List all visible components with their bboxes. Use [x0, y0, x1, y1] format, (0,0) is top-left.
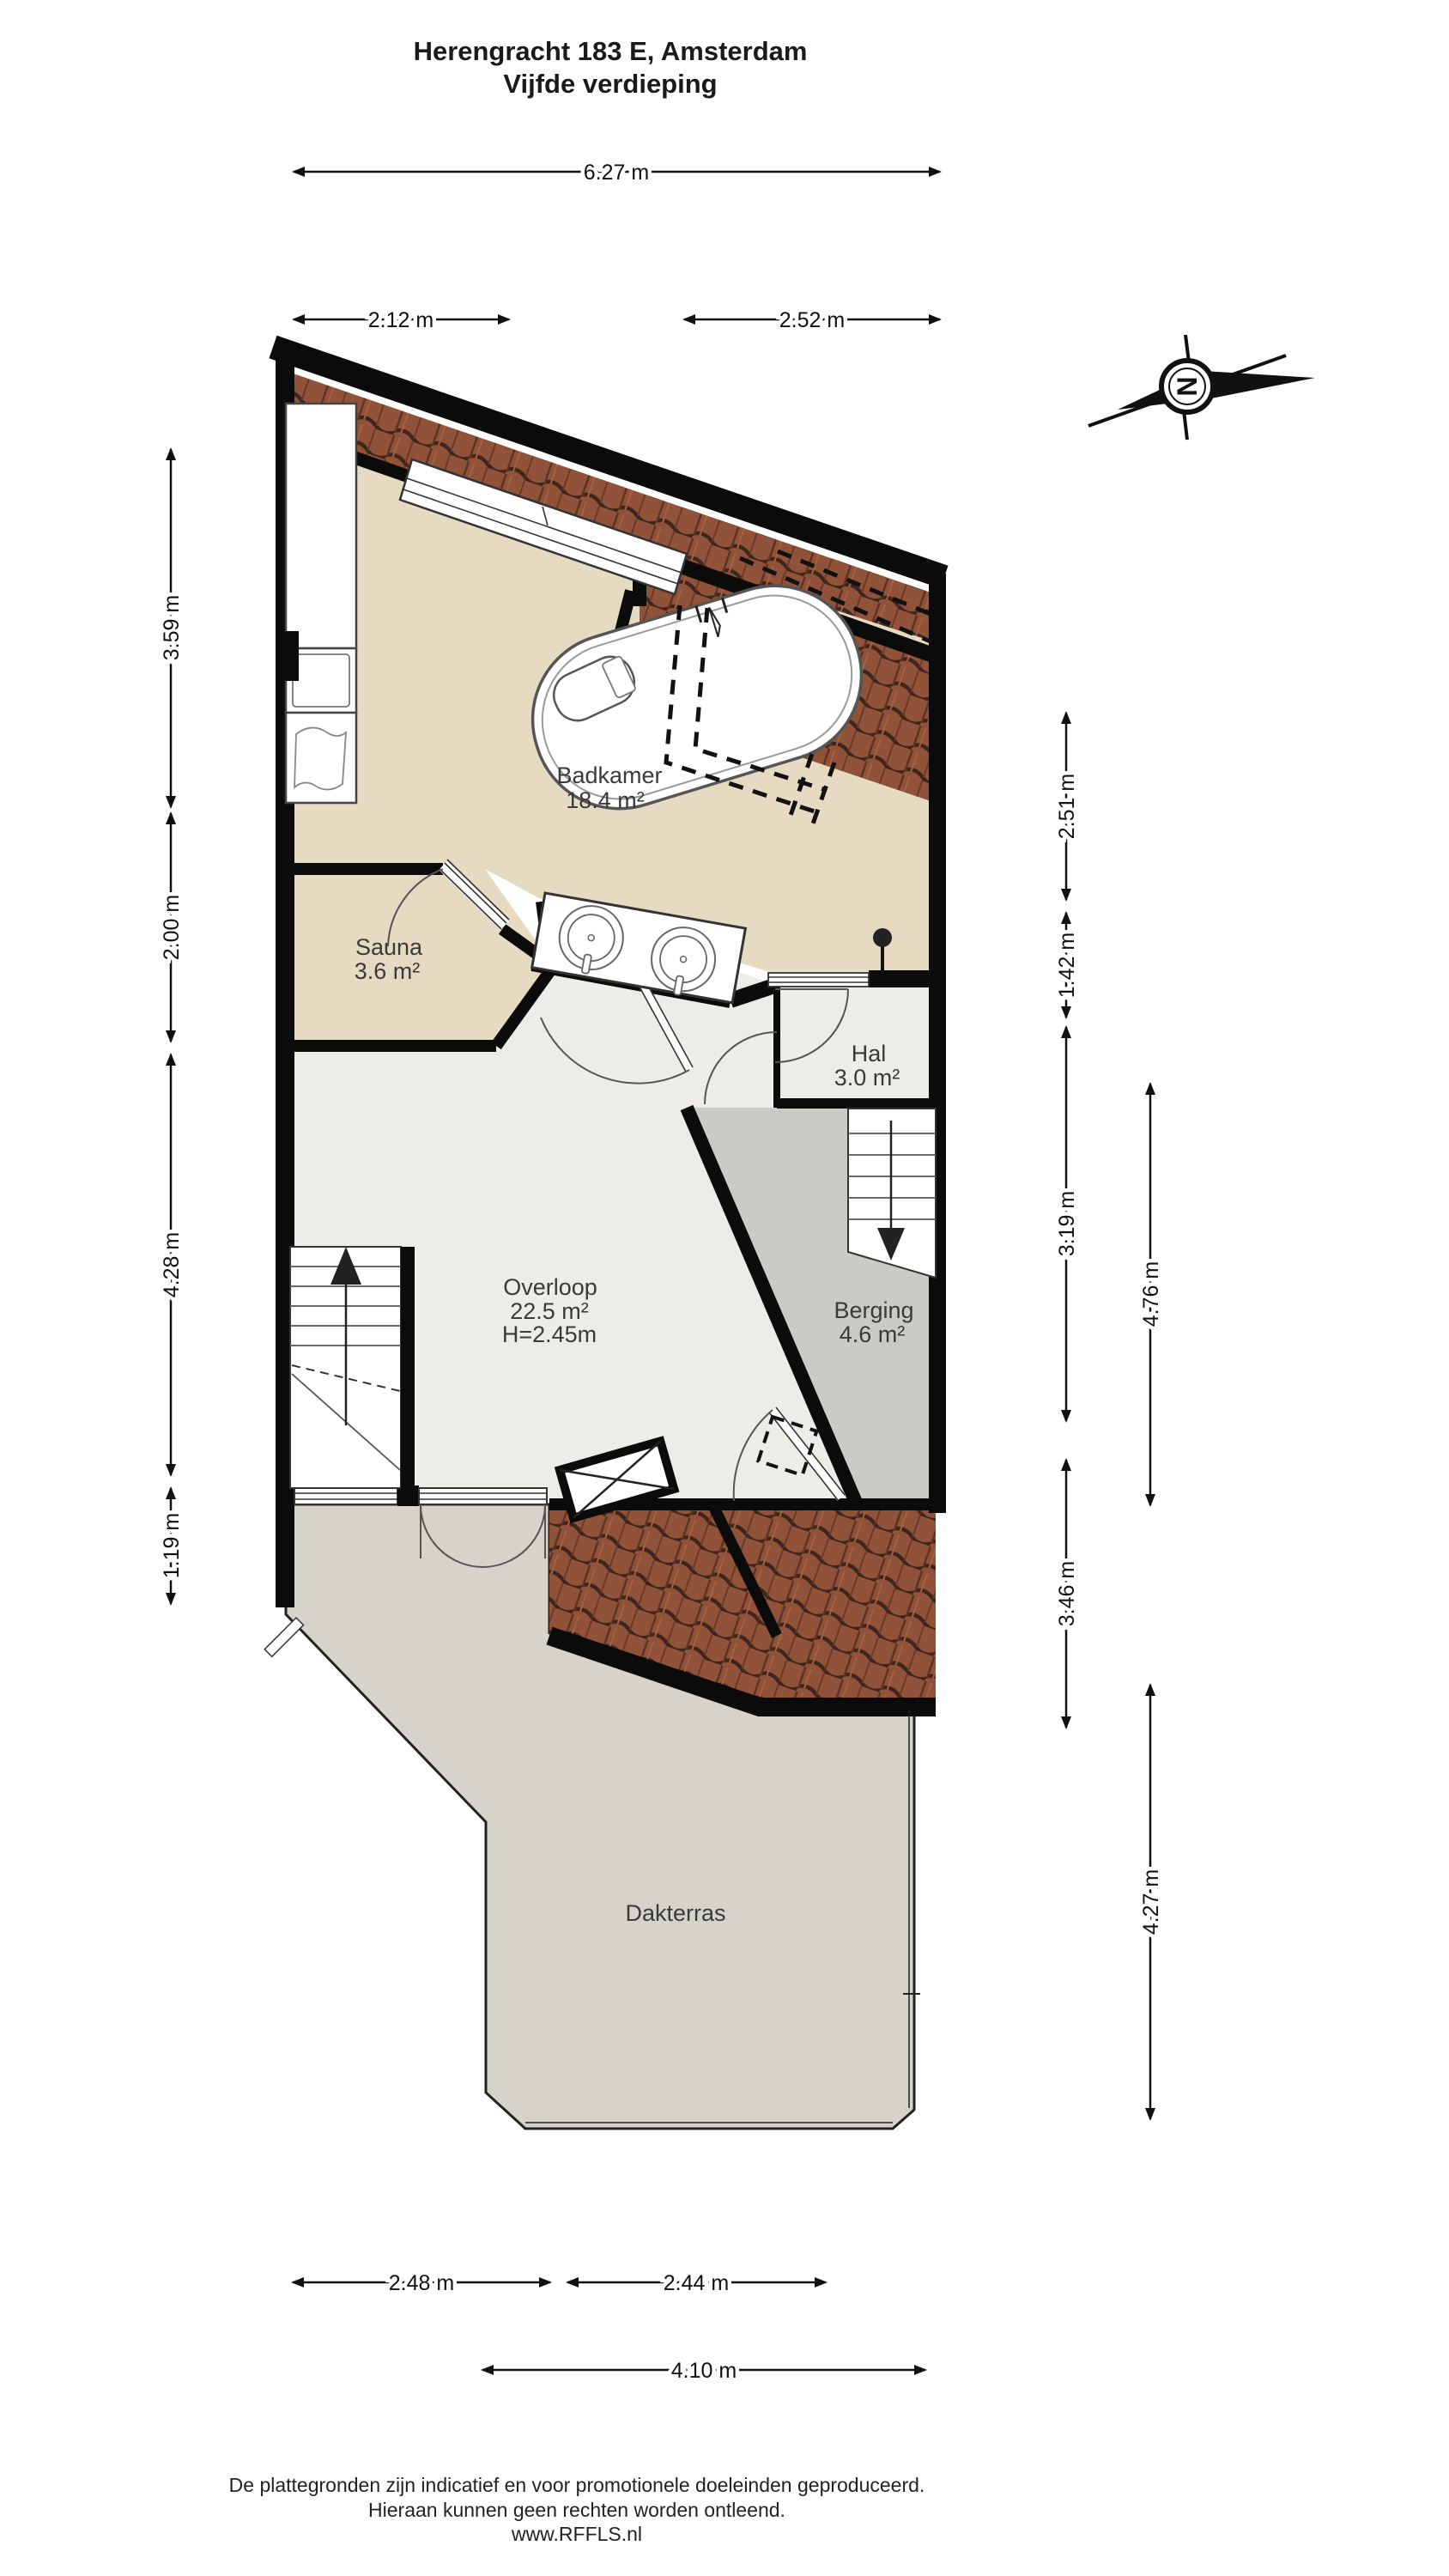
compass-letter: N [1171, 376, 1202, 396]
berging-area: 4.6 m² [840, 1321, 906, 1347]
laundry-flap [294, 727, 346, 789]
dim-left-2: 2.00 m [160, 895, 184, 960]
compass-icon: N [1088, 335, 1315, 440]
footer-link[interactable]: www.RFFLS.nl [511, 2523, 642, 2545]
overloop-label: Overloop [503, 1274, 597, 1300]
dim-left-4: 1.19 m [160, 1513, 184, 1578]
badkamer-label: Badkamer [556, 762, 662, 788]
floorplan-canvas: Herengracht 183 E, Amsterdam Vijfde verd… [0, 0, 1449, 2576]
dim-right-outer-2: 4.27 m [1139, 1869, 1163, 1935]
dim-right-3: 3.19 m [1055, 1191, 1079, 1256]
overloop-area: 22.5 m² [510, 1298, 589, 1324]
title-address: Herengracht 183 E, Amsterdam [414, 36, 808, 66]
title-block: Herengracht 183 E, Amsterdam Vijfde verd… [414, 36, 808, 99]
dim-right-2: 1.42 m [1055, 933, 1079, 998]
dim-top-total: 6.27 m [584, 161, 649, 185]
dim-top-left: 2.12 m [368, 308, 433, 332]
stairs-berging[interactable] [848, 1109, 936, 1278]
hal-glass-wall [768, 973, 869, 987]
floorplan-page: Herengracht 183 E, Amsterdam Vijfde verd… [0, 0, 1449, 2576]
footer-line-1: De plattegronden zijn indicatief en voor… [229, 2474, 925, 2496]
hal-label: Hal [852, 1041, 887, 1066]
terrace-doors-frame [419, 1488, 547, 1504]
dim-right-outer-1: 4.76 m [1139, 1261, 1163, 1327]
berging-label: Berging [834, 1297, 913, 1323]
overloop-height: H=2.45m [502, 1321, 597, 1347]
dim-bottom-left: 2.48 m [389, 2271, 454, 2295]
dim-top-right: 2.52 m [779, 308, 845, 332]
dim-left-1: 3.59 m [160, 595, 184, 660]
dim-bottom-total: 4.10 m [671, 2359, 737, 2383]
dim-right-1: 2.51 m [1055, 774, 1079, 839]
terrace-side-door[interactable] [264, 1618, 303, 1656]
window-left [294, 1488, 397, 1504]
footer-line-2: Hieraan kunnen geen rechten worden ontle… [368, 2499, 785, 2521]
badkamer-area: 18.4 m² [566, 787, 645, 813]
wardrobe [286, 404, 356, 648]
duct [283, 631, 299, 681]
footer-disclaimer: De plattegronden zijn indicatief en voor… [229, 2474, 925, 2545]
hal-area: 3.0 m² [834, 1065, 900, 1091]
dim-right-4: 3.46 m [1055, 1561, 1079, 1626]
sauna-label: Sauna [355, 934, 423, 960]
sauna-area: 3.6 m² [355, 958, 421, 984]
title-floor: Vijfde verdieping [503, 69, 717, 99]
dakterras-label: Dakterras [625, 1900, 725, 1926]
dim-left-3: 4.28 m [160, 1232, 184, 1297]
dim-bottom-right: 2.44 m [664, 2271, 729, 2295]
stairs-overloop[interactable] [290, 1247, 415, 1494]
